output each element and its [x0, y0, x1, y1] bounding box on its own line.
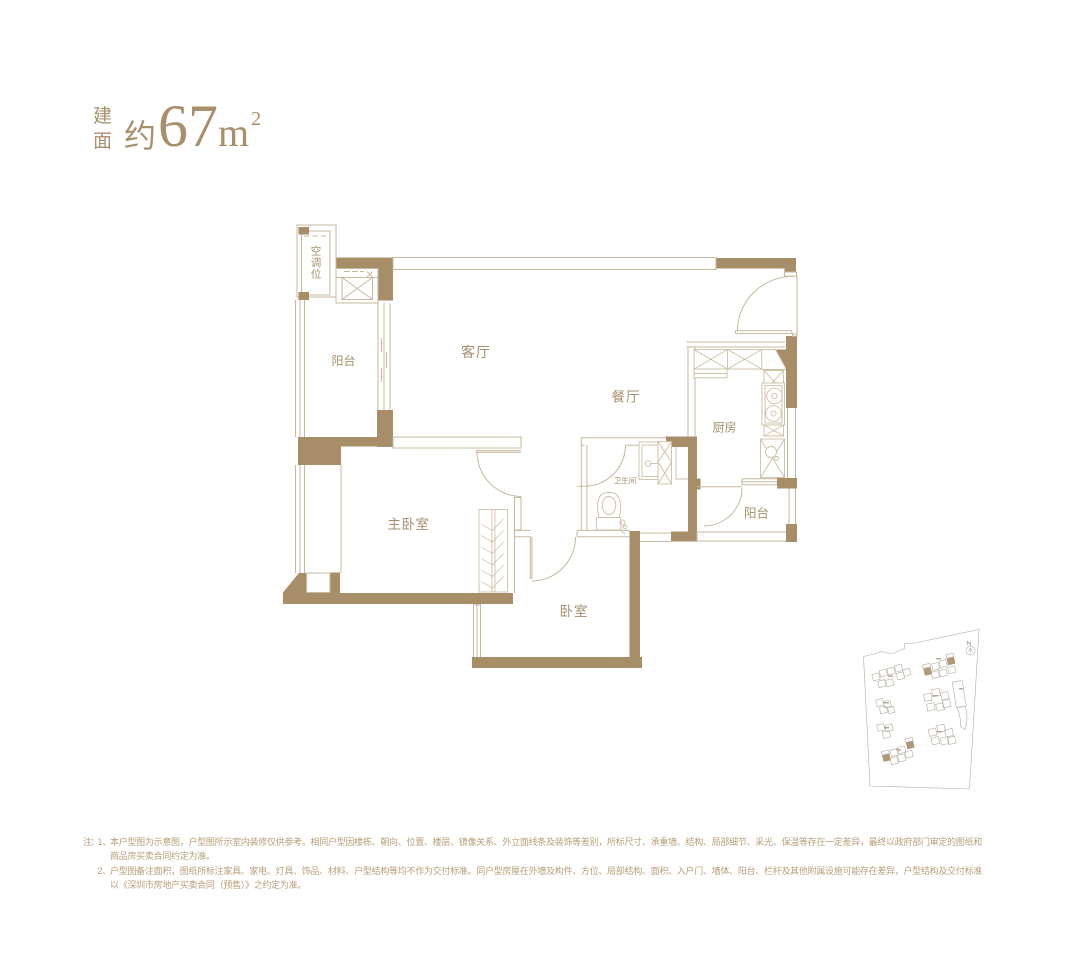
svg-text:阳台: 阳台: [331, 353, 355, 368]
svg-text:阳台: 阳台: [744, 506, 769, 521]
svg-text:卧室: 卧室: [560, 603, 589, 619]
svg-text:空调位: 空调位: [311, 245, 322, 281]
svg-text:卫生间: 卫生间: [614, 475, 637, 485]
svg-text:餐厅: 餐厅: [612, 390, 641, 405]
svg-text:客厅: 客厅: [461, 344, 491, 360]
svg-text:主卧室: 主卧室: [388, 516, 430, 532]
svg-text:厨房: 厨房: [712, 420, 736, 435]
